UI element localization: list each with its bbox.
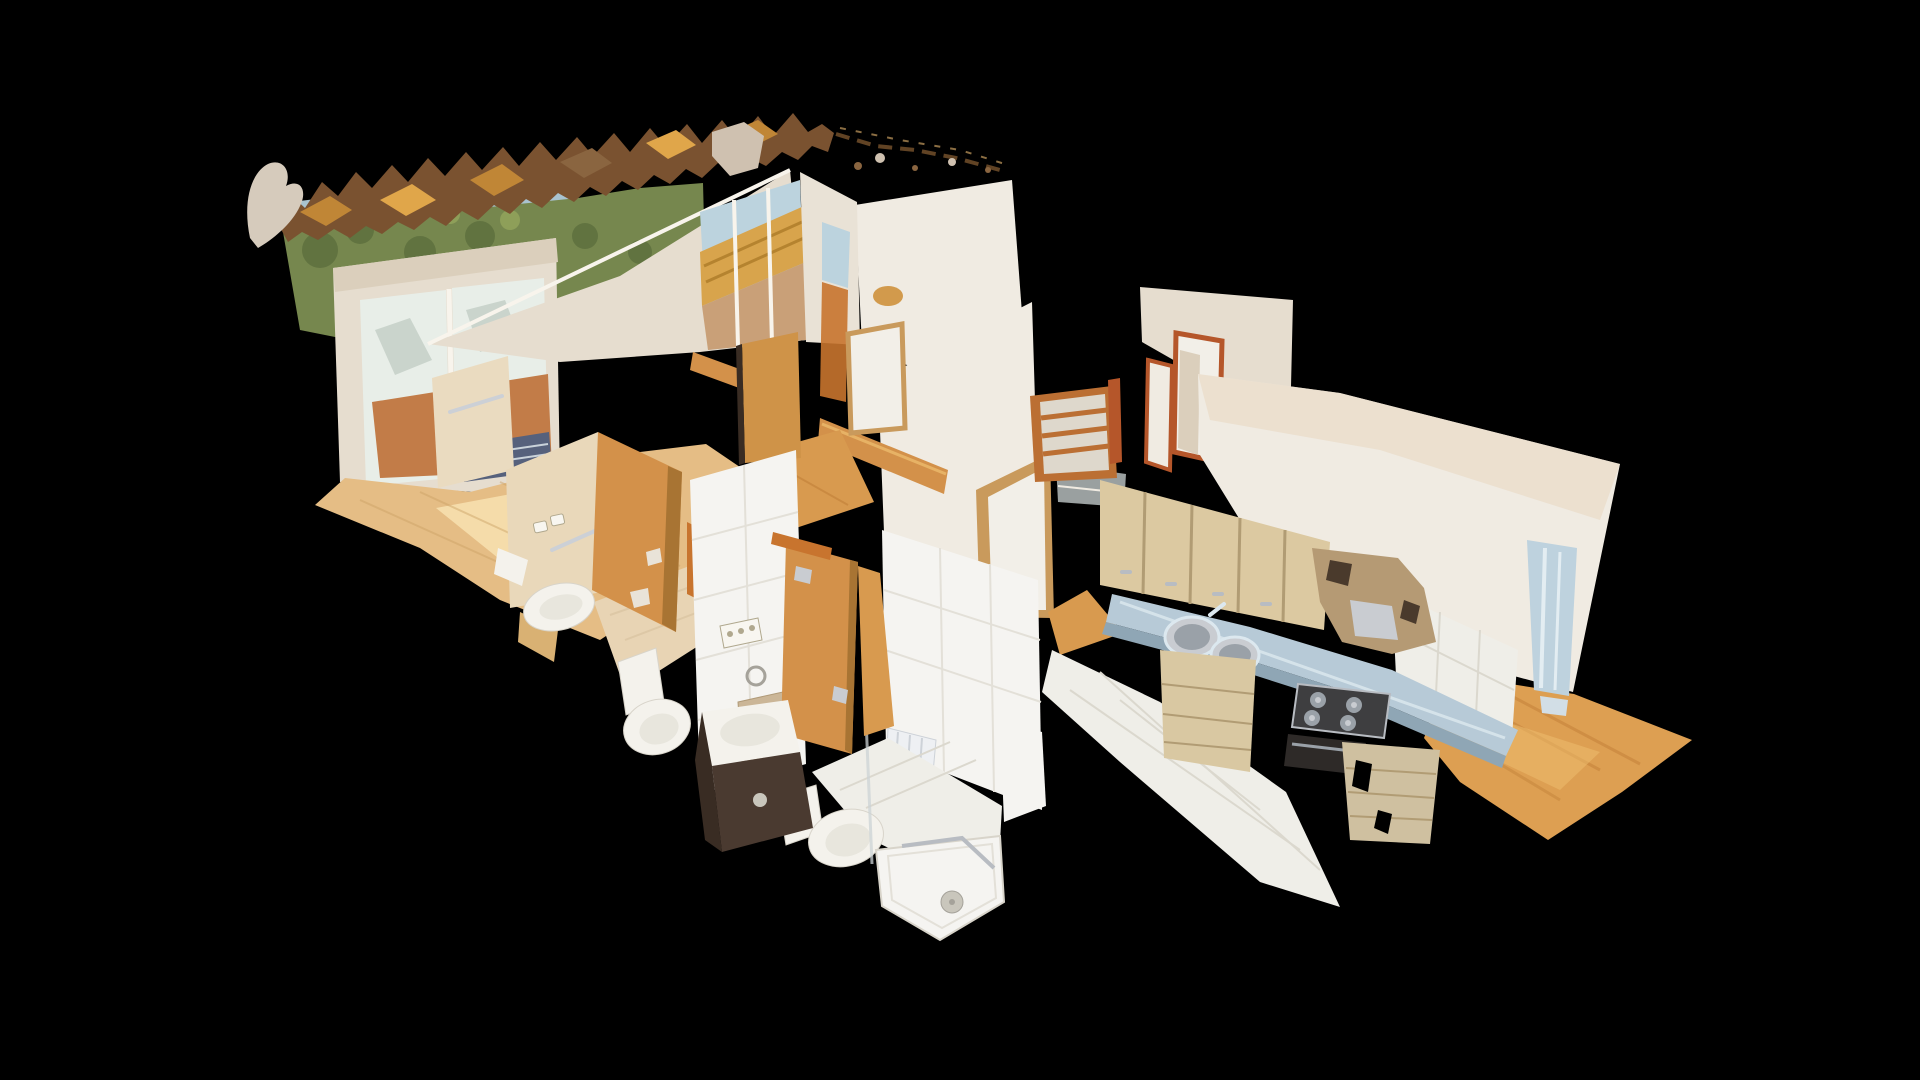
radiator-strip [1527, 540, 1577, 696]
hob-burner-cap [1315, 697, 1321, 703]
wall-socket [533, 521, 548, 533]
mesh-blob [912, 165, 918, 171]
cabinet-handle [1120, 570, 1132, 574]
tree-blob [572, 223, 598, 249]
dollhouse-model[interactable] [0, 0, 1920, 1080]
window-frame-glass [822, 222, 850, 288]
hood-steel [1350, 600, 1398, 640]
hall-door-wood [742, 332, 801, 463]
cabinet-handle [1165, 582, 1177, 586]
hob-burner-cap [1351, 702, 1357, 708]
doorway [1146, 360, 1172, 470]
debris-tail [840, 128, 1008, 165]
cabinet-divider [1238, 518, 1240, 613]
mesh-blob [854, 162, 862, 170]
cabinet-handle [1260, 602, 1272, 606]
cabinet-divider [1143, 492, 1145, 594]
bathroom-2 [771, 530, 1046, 940]
cabinet-divider [1283, 530, 1285, 622]
lower-cabinets [1160, 650, 1256, 772]
wall-socket [550, 514, 565, 526]
socket-hole [727, 631, 733, 637]
viewer-canvas [0, 0, 1920, 1080]
hob-burner-cap [1309, 715, 1315, 721]
cabinet-divider [1190, 505, 1192, 604]
vanity-knob [753, 793, 767, 807]
socket-hole [738, 628, 744, 634]
plaster-blotch [873, 286, 903, 306]
hob-burner-cap [1345, 720, 1351, 726]
gas-hob [1292, 684, 1390, 738]
tile-wall [1000, 720, 1046, 822]
shower-tray [876, 836, 1004, 940]
red-trim [1108, 378, 1122, 464]
doorway-shadow [1178, 350, 1200, 455]
mesh-blob [875, 153, 885, 163]
tree-blob [465, 221, 495, 251]
window-frame-wood [820, 282, 848, 402]
bathroom-wall [432, 356, 514, 488]
cabinet-handle [1212, 592, 1224, 596]
mesh-blob [948, 158, 956, 166]
mesh-blob [985, 167, 991, 173]
shower-drain-hole [949, 899, 955, 905]
hall-door-white [848, 324, 905, 433]
socket-hole [749, 625, 755, 631]
sink-bowl-inner [1174, 624, 1210, 650]
